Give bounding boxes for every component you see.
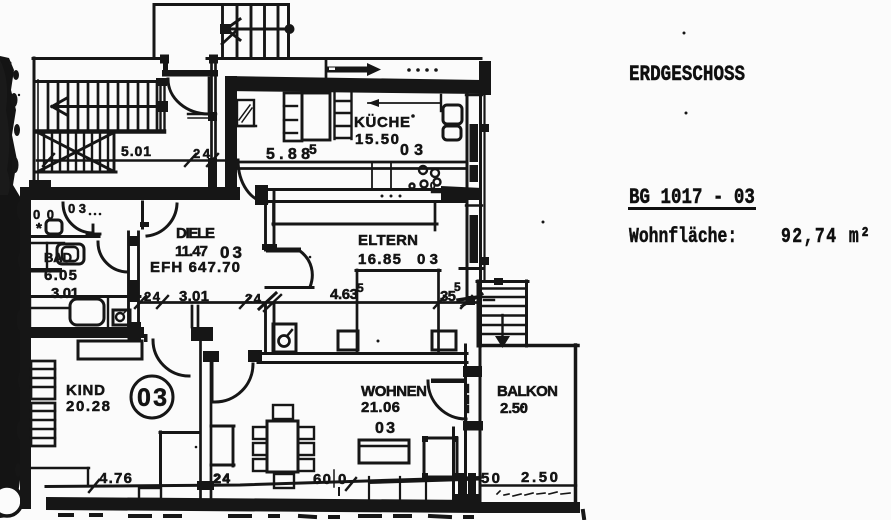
svg-text:*: * [36,220,42,237]
svg-text:60: 60 [313,471,331,488]
svg-text:Wohnfläche:: Wohnfläche: [629,224,737,249]
svg-text:4.63: 4.63 [330,286,358,303]
svg-text:ELTERN: ELTERN [358,232,418,249]
svg-text:24: 24 [193,146,211,161]
svg-text:5: 5 [454,280,461,294]
svg-text:5.01: 5.01 [121,143,151,159]
svg-text:24: 24 [213,470,230,486]
svg-text:21.06: 21.06 [361,399,400,416]
svg-text:03: 03 [375,420,395,437]
svg-text:20.28: 20.28 [66,398,110,415]
svg-text:16.85: 16.85 [358,251,401,268]
svg-text:KIND: KIND [66,382,105,399]
svg-text:4.76: 4.76 [99,470,132,487]
svg-text:11.47: 11.47 [175,243,208,260]
svg-text:24: 24 [245,291,262,306]
svg-text:KÜCHE: KÜCHE [354,114,410,131]
svg-text:5: 5 [357,281,364,295]
svg-text:DIELE: DIELE [176,225,215,242]
svg-text:5.88: 5.88 [266,146,310,163]
svg-text:03: 03 [400,142,423,159]
svg-text:WOHNEN: WOHNEN [361,383,427,400]
svg-text:24: 24 [144,289,161,304]
svg-text:15.50: 15.50 [355,131,399,148]
svg-text:03: 03 [68,201,86,216]
svg-text:BG 1017 - 03: BG 1017 - 03 [629,185,755,211]
svg-text:5: 5 [309,141,317,157]
svg-text:03: 03 [417,251,438,268]
svg-text:92,74 m²: 92,74 m² [781,224,870,249]
svg-text:ERDGESCHOSS: ERDGESCHOSS [629,62,745,88]
svg-text:BALKON: BALKON [497,383,558,400]
svg-text:EFH 647.70: EFH 647.70 [150,259,240,276]
svg-text:2.50: 2.50 [521,469,558,486]
svg-text:0: 0 [338,471,346,488]
svg-text:2.50: 2.50 [500,400,528,417]
svg-text:3.01: 3.01 [179,288,209,305]
svg-text:03: 03 [137,384,167,412]
